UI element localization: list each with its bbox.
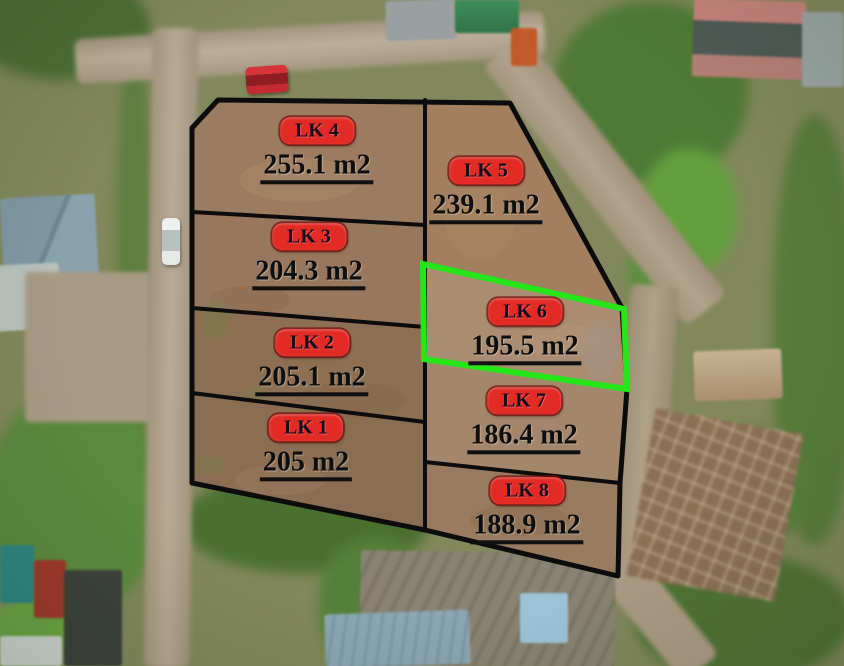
plot-boundaries-overlay — [0, 0, 844, 666]
aerial-plot-map: LK 4 255.1 m2 LK 5 239.1 m2 LK 3 204.3 m… — [0, 0, 844, 666]
